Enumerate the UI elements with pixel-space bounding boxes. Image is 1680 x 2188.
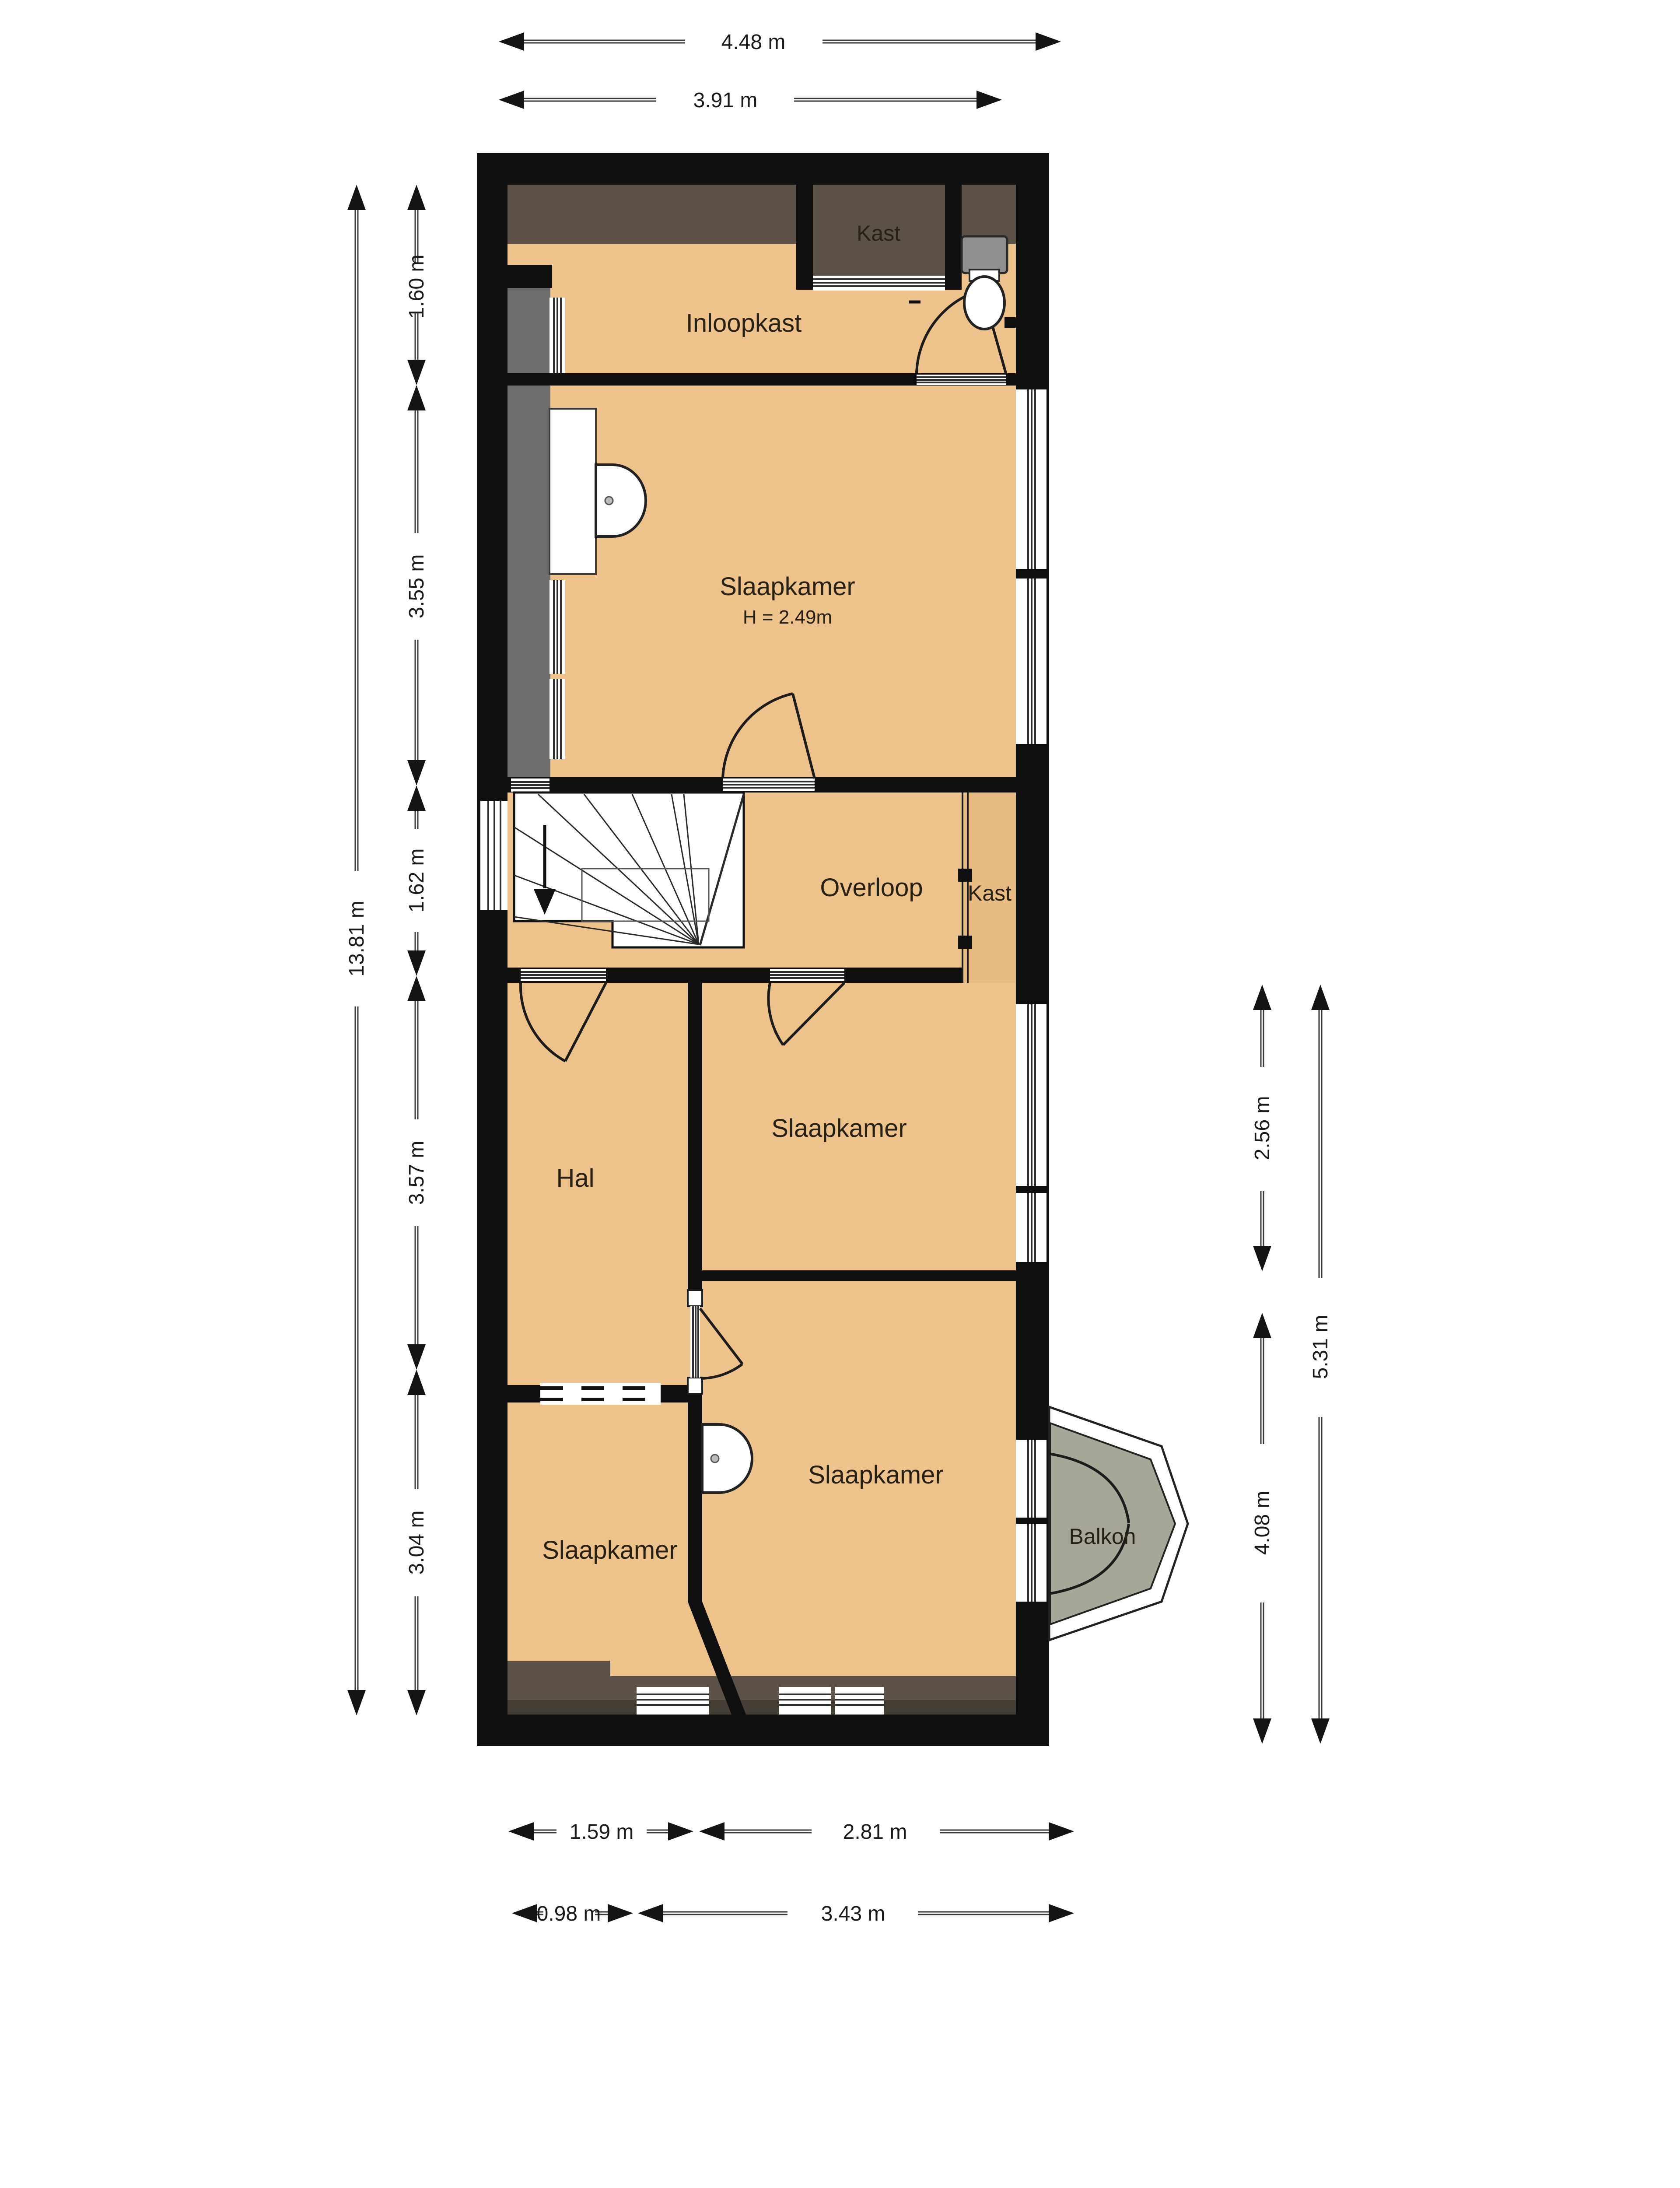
label-slaapkamer-top: Slaapkamer [720, 572, 855, 601]
floorplan-canvas: Kast Inloopkast Slaapkamer H = 2.49m Ove… [0, 0, 1680, 2188]
label-slaapkamer-middle: Slaapkamer [771, 1114, 906, 1143]
svg-text:4.48 m: 4.48 m [721, 31, 786, 54]
knee-wall-stub [507, 265, 552, 288]
kast-top-wall-right [945, 185, 962, 290]
dim-right-4-08: 4.08 m [1251, 1313, 1274, 1744]
wall-hal-divider [688, 983, 702, 1290]
svg-text:3.43 m: 3.43 m [821, 1902, 885, 1925]
label-inloopkast: Inloopkast [686, 309, 801, 337]
dim-top-overall: 4.48 m [499, 31, 1061, 54]
knee-wall-window-2 [549, 580, 565, 674]
wall-bedroom-divider [688, 1394, 702, 1602]
dim-left-1-60: 1.60 m [405, 185, 428, 385]
label-kast-landing: Kast [968, 881, 1011, 905]
window-slaapkamer-middle-2 [1016, 1193, 1046, 1262]
svg-text:3.04 m: 3.04 m [405, 1511, 428, 1575]
label-slaapkamer-bottom-right: Slaapkamer [808, 1461, 943, 1489]
svg-text:3.55 m: 3.55 m [405, 554, 428, 619]
ceiling-band-bottom-dark [507, 1700, 1016, 1715]
dim-left-3-55: 3.55 m [405, 385, 428, 785]
window-slaapkamer-top-1 [1016, 389, 1046, 569]
floor-plan: Kast Inloopkast Slaapkamer H = 2.49m Ove… [477, 153, 1188, 1746]
kast-top-wall-left [796, 185, 813, 290]
svg-text:1.59 m: 1.59 m [570, 1820, 634, 1844]
knee-wall-window-3 [549, 679, 565, 759]
label-kast-top: Kast [857, 221, 900, 245]
dashed-opening [540, 1383, 661, 1405]
label-hal: Hal [556, 1164, 594, 1192]
label-balkon: Balkon [1069, 1524, 1136, 1549]
window-stairs-left [480, 801, 507, 910]
label-overloop: Overloop [820, 873, 923, 902]
window-bottom-right-2 [835, 1687, 884, 1715]
svg-text:3.57 m: 3.57 m [405, 1141, 428, 1205]
dormer-recess [549, 409, 596, 574]
balcony [1049, 1407, 1188, 1640]
window-slaapkamer-top-2 [1016, 579, 1046, 744]
window-bottom-left [637, 1687, 709, 1715]
dim-left-1-62: 1.62 m [405, 785, 428, 976]
window-stairs-top [511, 778, 549, 792]
dim-bottom-3-43: 3.43 m [638, 1902, 1074, 1925]
balcony-door-frame [1016, 1440, 1046, 1602]
svg-text:0.98 m: 0.98 m [537, 1902, 601, 1925]
wall-slaapkamer-middle [688, 1270, 1016, 1281]
svg-text:2.56 m: 2.56 m [1251, 1096, 1274, 1161]
svg-text:1.60 m: 1.60 m [405, 255, 428, 319]
dim-left-3-57: 3.57 m [405, 976, 428, 1370]
window-slaapkamer-middle-1 [1016, 1004, 1046, 1186]
label-slaapkamer-bottom-left: Slaapkamer [542, 1536, 677, 1564]
dim-bottom-0-98: 0.98 m [512, 1902, 633, 1925]
dim-left-overall: 13.81 m [345, 185, 368, 1715]
svg-text:2.81 m: 2.81 m [843, 1820, 907, 1844]
dim-top-inner: 3.91 m [499, 89, 1002, 112]
dim-bottom-1-59: 1.59 m [508, 1820, 693, 1844]
dim-right-2-56: 2.56 m [1251, 985, 1274, 1271]
svg-text:13.81 m: 13.81 m [345, 901, 368, 976]
svg-text:3.91 m: 3.91 m [693, 89, 758, 112]
dim-left-3-04: 3.04 m [405, 1370, 428, 1715]
dim-right-overall: 5.31 m [1309, 985, 1332, 1744]
knee-wall-window-1 [549, 298, 565, 385]
knee-wall-strip [507, 288, 550, 792]
label-slaapkamer-top-height: H = 2.49m [743, 607, 832, 628]
svg-text:1.62 m: 1.62 m [405, 849, 428, 913]
kast-sliding-door [813, 276, 945, 291]
svg-text:4.08 m: 4.08 m [1251, 1491, 1274, 1555]
window-bottom-right-1 [779, 1687, 831, 1715]
svg-text:5.31 m: 5.31 m [1309, 1315, 1332, 1379]
dim-bottom-2-81: 2.81 m [699, 1820, 1074, 1844]
